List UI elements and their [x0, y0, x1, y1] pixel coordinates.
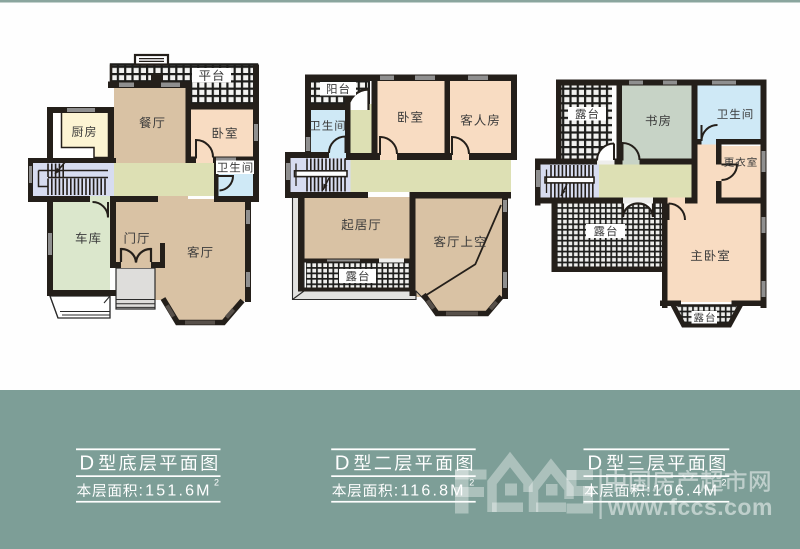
svg-text:D: D: [335, 452, 350, 474]
svg-text::116.8M: :116.8M: [394, 483, 466, 500]
svg-text:2: 2: [722, 478, 727, 488]
svg-text::151.6M: :151.6M: [139, 483, 212, 500]
svg-text:D: D: [79, 452, 94, 474]
svg-text:www.fccs.com: www.fccs.com: [607, 494, 773, 520]
svg-text:2: 2: [214, 478, 219, 488]
